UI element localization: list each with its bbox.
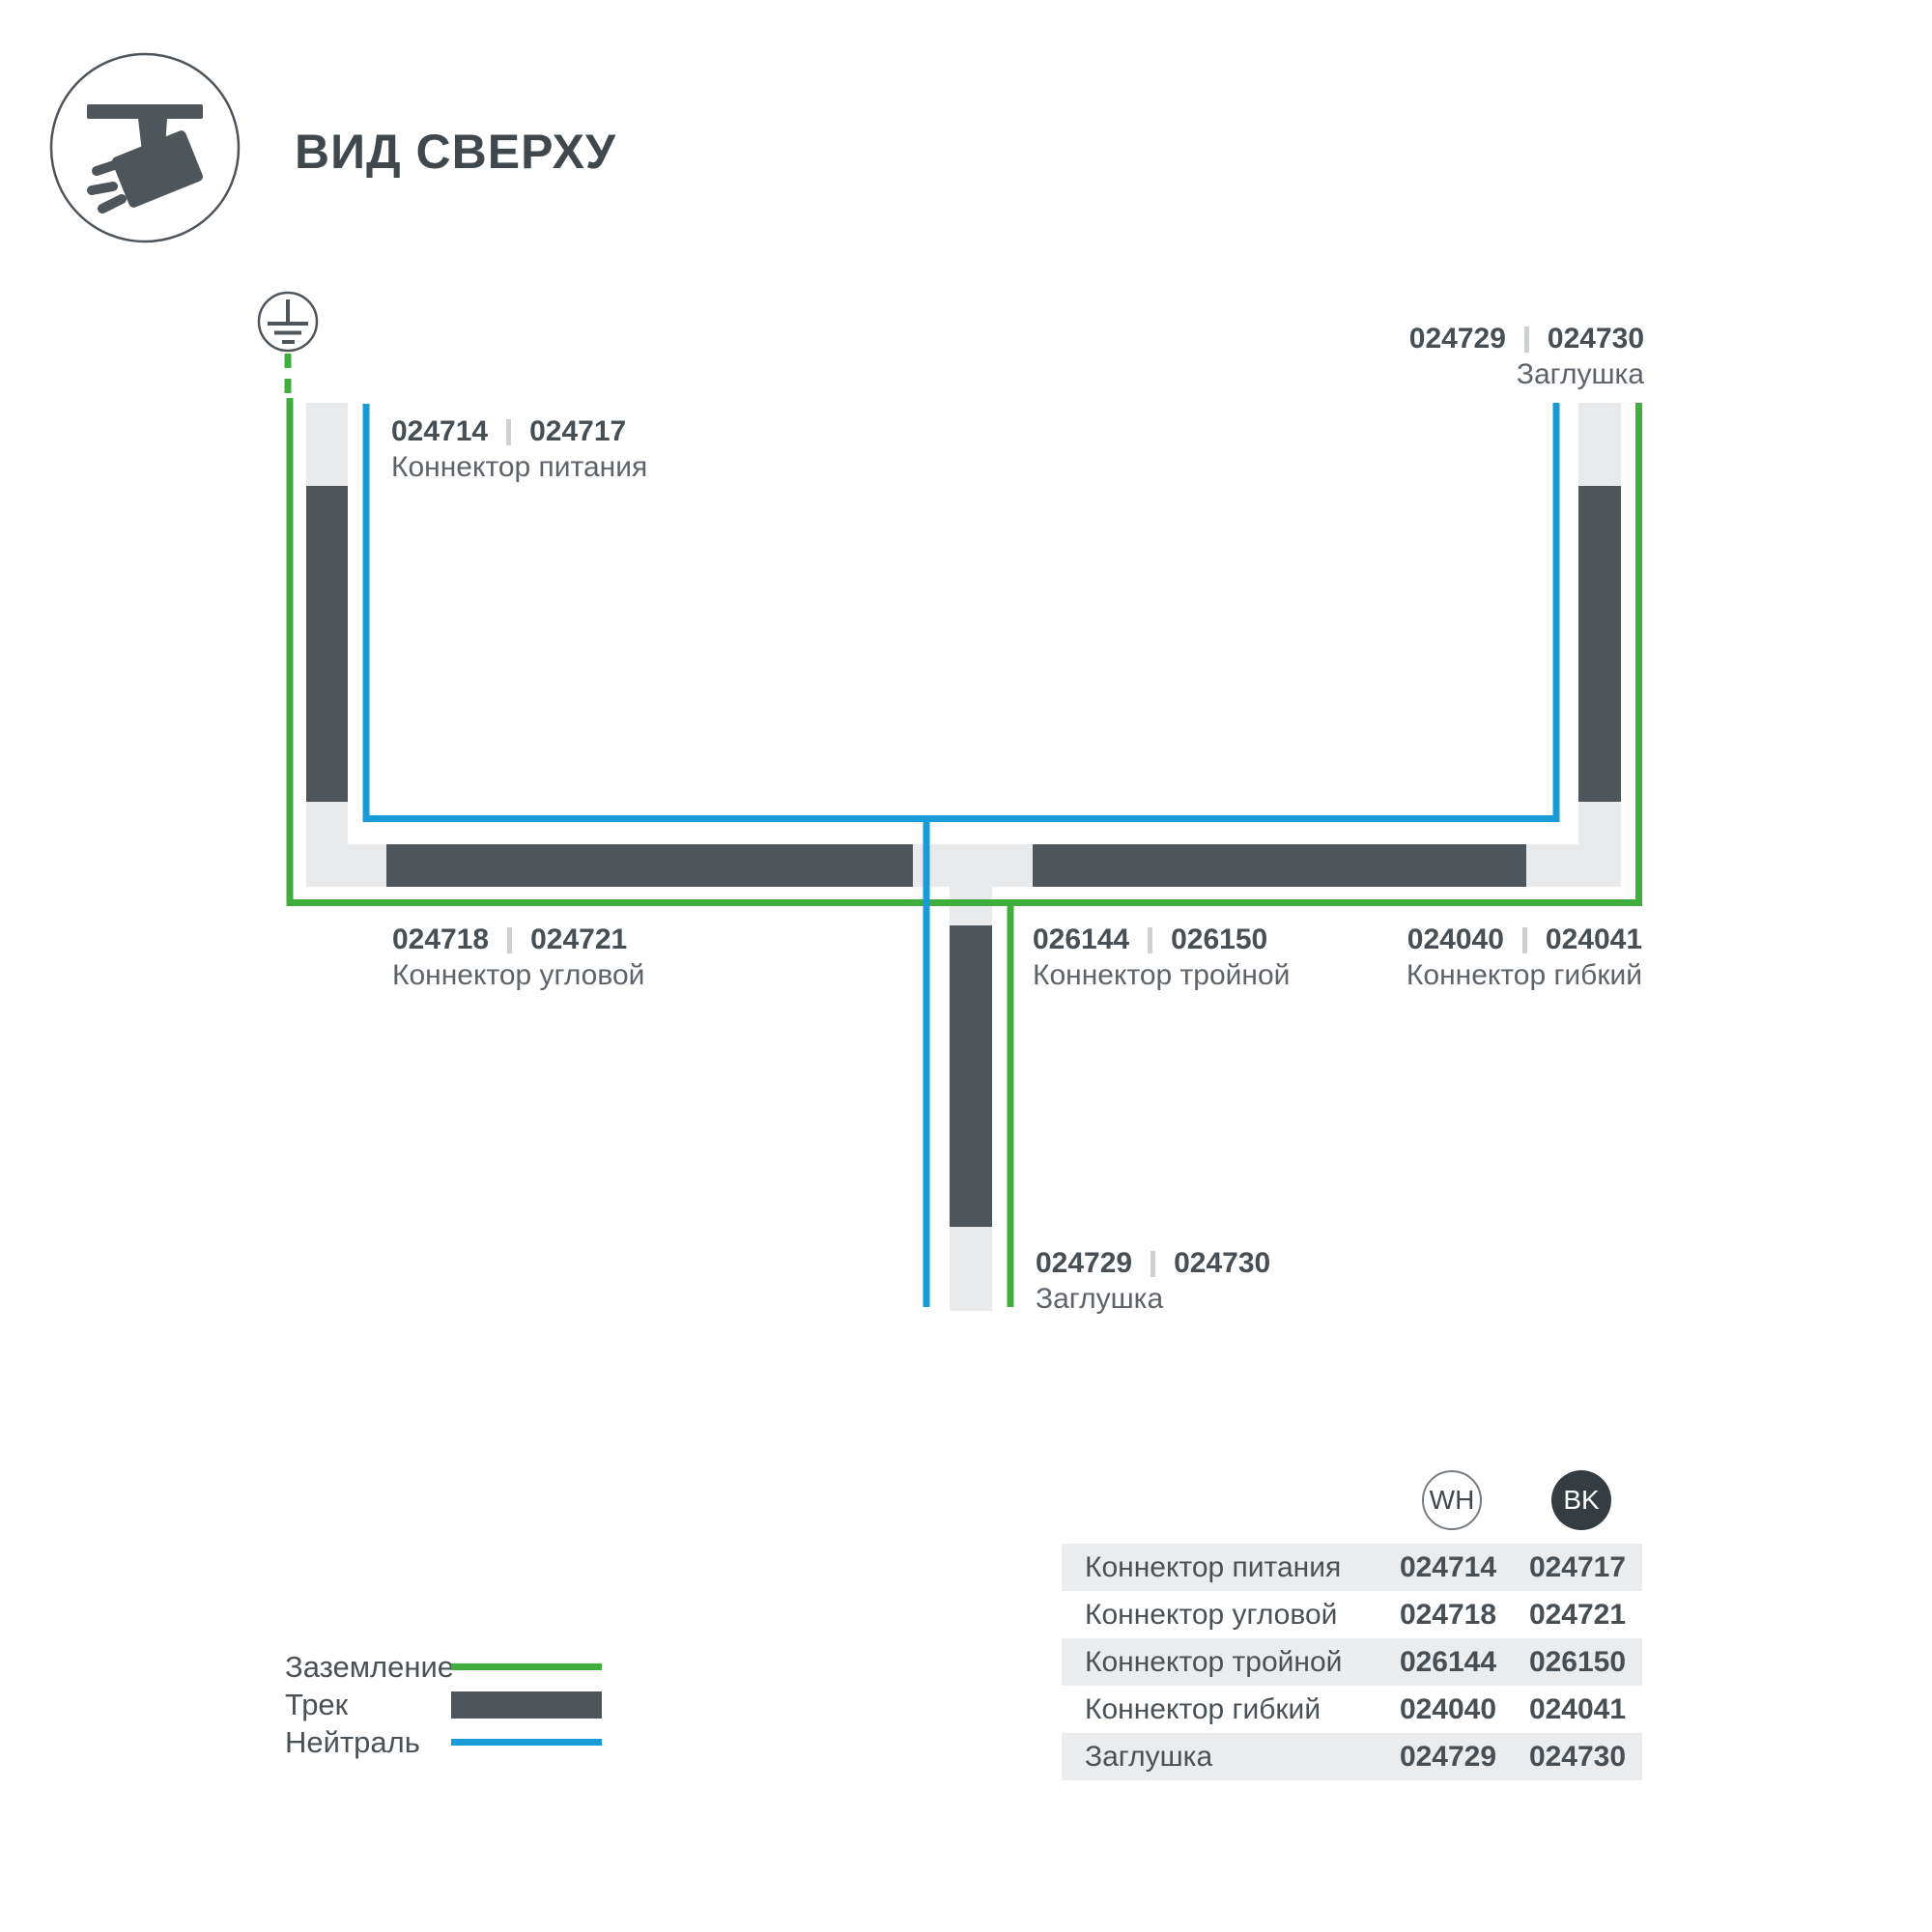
label-power-connector: 024714 024717 Коннектор питания (391, 417, 647, 483)
table-row: Коннектор тройной 026144 026150 (1062, 1638, 1642, 1686)
codes-row: 024729 024730 (1409, 325, 1644, 354)
legend-label: Трек (285, 1688, 451, 1722)
legend: Заземление Трек Нейтраль (285, 1648, 602, 1761)
code-wh: 024718 (392, 925, 489, 954)
label-corner-connector: 024718 024721 Коннектор угловой (392, 925, 644, 991)
track-bar-swatch (451, 1691, 602, 1719)
label-end-cap-top: 024729 024730 Заглушка (1409, 325, 1644, 390)
code-wh: 024729 (1409, 325, 1506, 354)
part-code-bk: 024730 (1513, 1741, 1642, 1774)
codes-row: 024040 024041 (1407, 925, 1642, 954)
part-code-bk: 024721 (1513, 1599, 1642, 1632)
code-divider (1151, 1251, 1155, 1277)
legend-item-neutral: Нейтраль (285, 1723, 602, 1761)
table-row: Коннектор питания 024714 024717 (1062, 1544, 1642, 1591)
codes-row: 024729 024730 (1036, 1249, 1270, 1278)
green-line-swatch (451, 1663, 602, 1670)
track-middle-vertical (950, 925, 992, 1227)
part-code-wh: 024040 (1383, 1693, 1513, 1726)
end-cap-top-body (1578, 403, 1621, 486)
blue-line-swatch (451, 1739, 602, 1746)
color-badge-white: WH (1422, 1470, 1482, 1530)
codes-row: 026144 026150 (1033, 925, 1290, 954)
code-bk: 024730 (1174, 1249, 1270, 1278)
track-left-vertical (306, 486, 348, 802)
connector-power-body (306, 403, 348, 486)
part-code-wh: 024729 (1383, 1741, 1513, 1774)
legend-item-track: Трек (285, 1686, 602, 1723)
code-wh: 024040 (1407, 925, 1504, 954)
track-layout-diagram (0, 0, 1932, 1932)
code-bk: 024721 (530, 925, 627, 954)
label-name: Коннектор гибкий (1406, 960, 1642, 991)
part-code-wh: 024718 (1383, 1599, 1513, 1632)
code-bk: 024717 (529, 417, 626, 446)
parts-table-header: WH BK (1062, 1470, 1642, 1544)
part-name: Коннектор гибкий (1062, 1693, 1383, 1726)
end-cap-bottom-body (950, 1227, 992, 1311)
label-name: Коннектор тройной (1033, 960, 1290, 991)
code-wh: 026144 (1033, 925, 1129, 954)
table-row: Коннектор угловой 024718 024721 (1062, 1591, 1642, 1638)
part-name: Коннектор питания (1062, 1551, 1383, 1584)
label-end-cap-bottom: 024729 024730 Заглушка (1036, 1249, 1270, 1315)
code-bk: 024730 (1548, 325, 1644, 354)
part-name: Коннектор тройной (1062, 1646, 1383, 1679)
part-name: Коннектор угловой (1062, 1599, 1383, 1632)
label-name: Заглушка (1517, 359, 1644, 390)
part-code-bk: 024041 (1513, 1693, 1642, 1726)
color-badge-black: BK (1551, 1470, 1611, 1530)
codes-row: 024714 024717 (391, 417, 647, 446)
code-wh: 024714 (391, 417, 488, 446)
code-divider (507, 927, 512, 953)
code-divider (506, 419, 511, 445)
connector-triple-body (913, 844, 1033, 887)
connector-flexible-body (1578, 802, 1621, 887)
legend-item-ground: Заземление (285, 1648, 602, 1686)
codes-row: 024718 024721 (392, 925, 644, 954)
label-name: Коннектор угловой (392, 960, 644, 991)
legend-label: Нейтраль (285, 1725, 451, 1760)
table-row: Заглушка 024729 024730 (1062, 1733, 1642, 1780)
code-bk: 024041 (1546, 925, 1642, 954)
label-triple-connector: 026144 026150 Коннектор тройной (1033, 925, 1290, 991)
label-name: Заглушка (1036, 1284, 1270, 1315)
track-segments (306, 403, 1621, 1311)
table-row: Коннектор гибкий 024040 024041 (1062, 1686, 1642, 1733)
part-name: Заглушка (1062, 1741, 1383, 1774)
code-divider (1524, 327, 1529, 353)
part-code-wh: 024714 (1383, 1551, 1513, 1584)
track-horizontal-right (1033, 844, 1526, 887)
label-name: Коннектор питания (391, 452, 647, 483)
connector-corner-body (306, 844, 386, 887)
track-horizontal-left (386, 844, 913, 887)
part-code-bk: 024717 (1513, 1551, 1642, 1584)
parts-table: WH BK Коннектор питания 024714 024717 Ко… (1062, 1470, 1642, 1780)
code-wh: 024729 (1036, 1249, 1132, 1278)
label-flexible-connector: 024040 024041 Коннектор гибкий (1406, 925, 1642, 991)
code-bk: 026150 (1171, 925, 1267, 954)
parts-table-body: Коннектор питания 024714 024717 Коннекто… (1062, 1544, 1642, 1780)
code-divider (1148, 927, 1152, 953)
code-divider (1522, 927, 1527, 953)
track-right-vertical (1578, 486, 1621, 802)
legend-label: Заземление (285, 1650, 451, 1685)
part-code-bk: 026150 (1513, 1646, 1642, 1679)
earth-ground-icon (259, 293, 317, 351)
part-code-wh: 026144 (1383, 1646, 1513, 1679)
